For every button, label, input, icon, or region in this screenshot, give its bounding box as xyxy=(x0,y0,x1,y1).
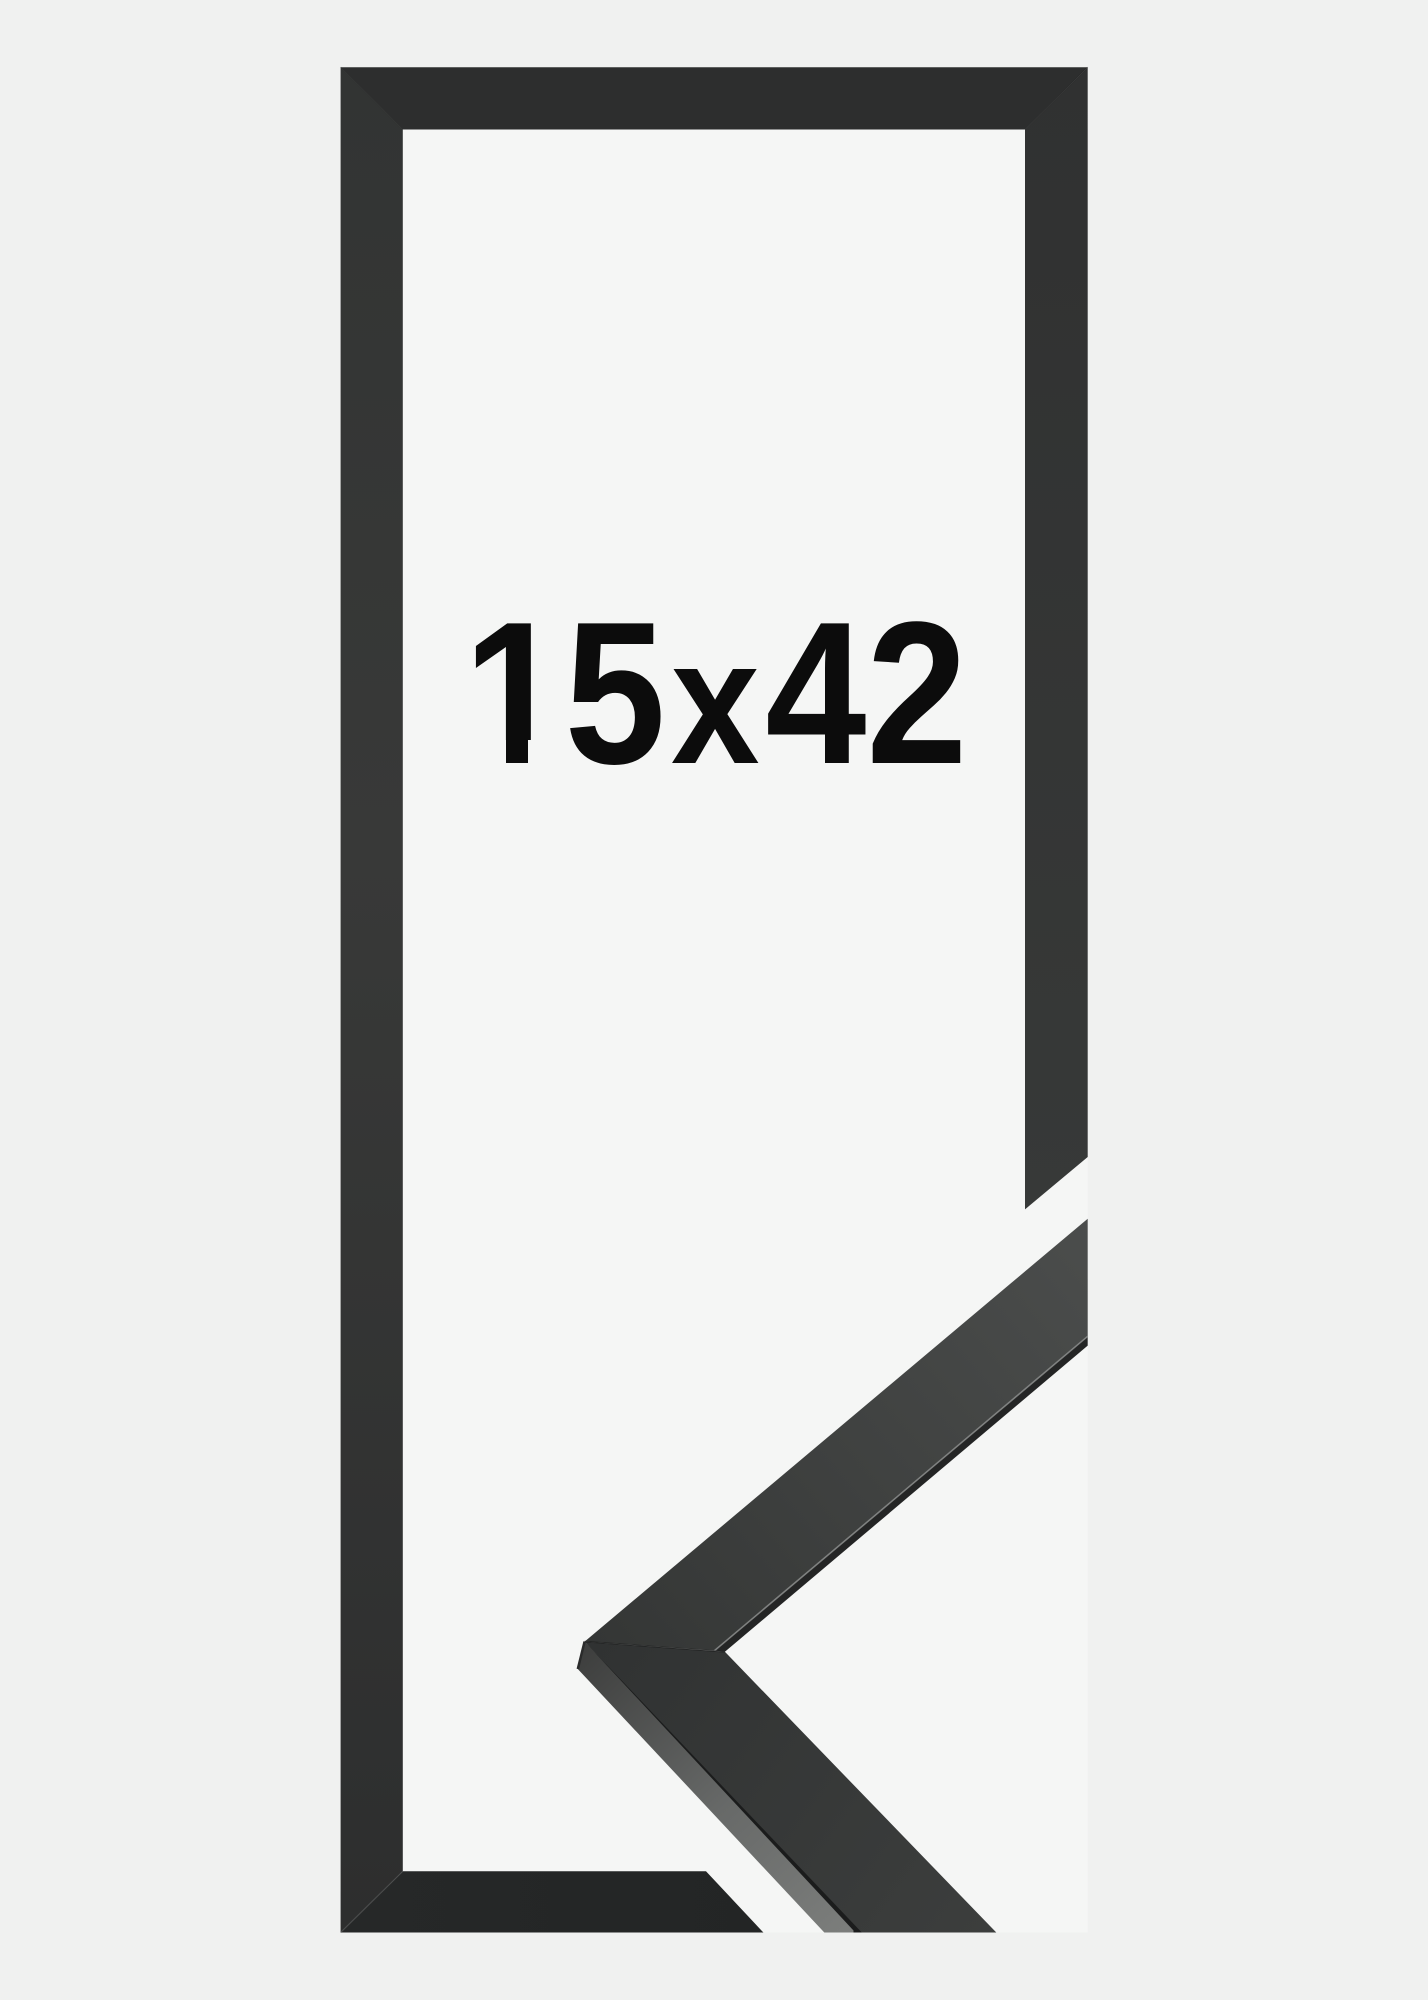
svg-text:15x42: 15x42 xyxy=(464,580,968,807)
